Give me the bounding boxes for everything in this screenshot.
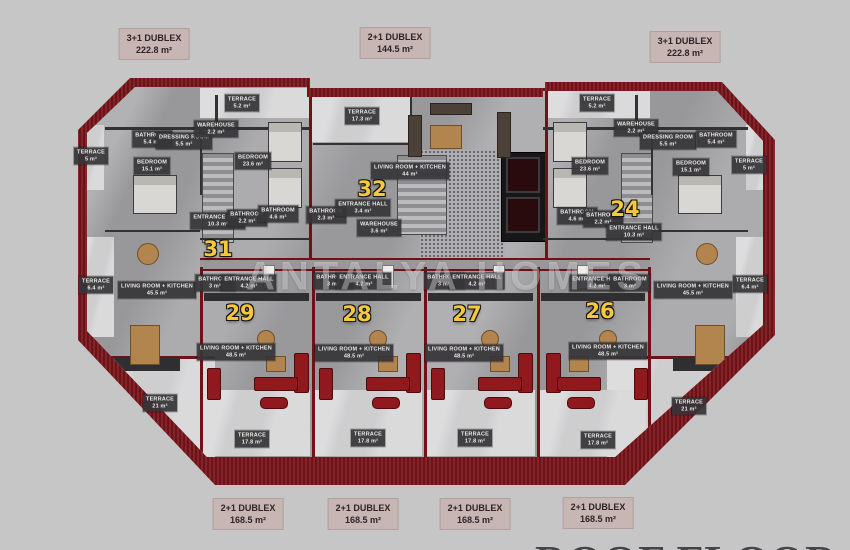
unit-type-label: 2+1 DUBLEX168.5 m² [213, 498, 284, 530]
unit-number: 32 [357, 177, 386, 201]
round-table-icon [696, 243, 718, 265]
room-label: LIVING ROOM + KITCHEN48.5 m² [197, 344, 275, 361]
room-label-room: TERRACE [228, 97, 256, 104]
room-label-room: ENTRANCE HALL [338, 202, 387, 209]
unit-number: 31 [203, 237, 232, 261]
room-label-area: 2.2 m² [197, 129, 235, 136]
room-label-area: 5.4 m² [699, 139, 733, 146]
unit-type-label-type: 3+1 DUBLEX [658, 35, 713, 47]
unit-divider-wall [648, 267, 651, 457]
elevator-icon [506, 197, 540, 233]
room-label: TERRACE21 m² [672, 398, 706, 415]
unit-type-label: 2+1 DUBLEX168.5 m² [563, 497, 634, 529]
room-label-area: 17.8 m² [238, 439, 266, 446]
room-label-area: 48.5 m² [428, 353, 500, 360]
unit-type-label: 3+1 DUBLEX222.8 m² [650, 31, 721, 63]
unit-type-label-type: 2+1 DUBLEX [221, 502, 276, 514]
unit-type-label: 3+1 DUBLEX222.8 m² [119, 28, 190, 60]
room-label-area: 10.3 m² [609, 232, 658, 239]
room-label: TERRACE6.4 m² [79, 277, 113, 294]
terrace-bench-icon [372, 397, 400, 409]
dining-table-icon [130, 325, 160, 365]
unit-divider-wall [200, 267, 203, 457]
room-label: TERRACE6.4 m² [733, 276, 767, 293]
room-label-area: 17.8 m² [461, 438, 489, 445]
room-label: TERRACE17.8 m² [235, 431, 269, 448]
room-label-room: TERRACE [675, 400, 703, 407]
sofa-icon [207, 368, 221, 400]
room-label: TERRACE17.8 m² [351, 430, 385, 447]
unit-type-label: 2+1 DUBLEX144.5 m² [360, 27, 431, 59]
room-label-area: 17.8 m² [584, 440, 612, 447]
room-label-area: 5.2 m² [583, 103, 611, 110]
table-icon [430, 125, 462, 149]
unit-type-label-area: 168.5 m² [448, 514, 503, 526]
unit-number: 27 [452, 302, 481, 326]
room-label-room: TERRACE [146, 397, 174, 404]
interior-wall [105, 230, 200, 232]
unit-number: 29 [225, 301, 254, 325]
bed-icon [133, 175, 177, 214]
room-label-room: ENTRANCE HALL [609, 226, 658, 233]
sofa-icon [319, 368, 333, 400]
unit-type-label-area: 222.8 m² [127, 44, 182, 56]
room-label: ENTRANCE HALL10.3 m² [606, 224, 661, 241]
room-label-room: LIVING ROOM + KITCHEN [318, 347, 390, 354]
unit-divider-wall [309, 88, 312, 258]
room-label-room: BEDROOM [575, 160, 605, 167]
room-label-area: 21 m² [146, 403, 174, 410]
bed-icon [553, 122, 587, 162]
room-label: BEDROOM15.1 m² [134, 158, 170, 175]
room-label-area: 5.5 m² [159, 141, 209, 148]
unit-type-label-area: 144.5 m² [368, 43, 423, 55]
room-label-room: LIVING ROOM + KITCHEN [374, 165, 446, 172]
room-label-room: LIVING ROOM + KITCHEN [428, 347, 500, 354]
room-label-room: DRESSING ROOM [643, 135, 693, 142]
room-label: DRESSING ROOM5.5 m² [640, 133, 696, 150]
unit-type-label-area: 222.8 m² [658, 47, 713, 59]
room-label-room: LIVING ROOM + KITCHEN [121, 284, 193, 291]
unit-type-label-type: 2+1 DUBLEX [571, 501, 626, 513]
round-table-icon [137, 243, 159, 265]
unit-number: 26 [585, 299, 614, 323]
bed-icon [268, 168, 302, 208]
room-label-room: TERRACE [735, 159, 763, 166]
room-label-room: TERRACE [354, 432, 382, 439]
room-label-room: LIVING ROOM + KITCHEN [200, 346, 272, 353]
room-label: TERRACE5.2 m² [225, 95, 259, 112]
sofa-icon [478, 377, 522, 391]
room-label: BATHROOM4.6 m² [258, 206, 298, 223]
room-label-room: TERRACE [736, 278, 764, 285]
room-label-area: 5.2 m² [228, 103, 256, 110]
sofa-icon [254, 377, 298, 391]
unit-type-label-type: 2+1 DUBLEX [448, 502, 503, 514]
sofa-icon [431, 368, 445, 400]
room-label-area: 15.1 m² [137, 166, 167, 173]
room-label: LIVING ROOM + KITCHEN48.5 m² [315, 345, 393, 362]
unit-type-label: 2+1 DUBLEX168.5 m² [328, 498, 399, 530]
unit-number: 24 [610, 197, 639, 221]
unit-type-label-area: 168.5 m² [221, 514, 276, 526]
room-label-room: TERRACE [238, 433, 266, 440]
room-label-area: 5.5 m² [643, 141, 693, 148]
room-label: LIVING ROOM + KITCHEN45.5 m² [654, 282, 732, 299]
sofa-icon [497, 112, 511, 158]
room-label-area: 6.4 m² [736, 284, 764, 291]
room-label-area: 48.5 m² [318, 353, 390, 360]
room-label: LIVING ROOM + KITCHEN48.5 m² [425, 345, 503, 362]
room-label-area: 6.4 m² [82, 285, 110, 292]
dining-table-icon [695, 325, 725, 365]
room-label-area: 17.3 m² [348, 116, 376, 123]
room-label: TERRACE17.8 m² [458, 430, 492, 447]
room-label-area: 15.1 m² [676, 167, 706, 174]
room-label: LIVING ROOM + KITCHEN48.5 m² [569, 343, 647, 360]
unit-divider-wall [545, 88, 548, 258]
unit-type-label: 2+1 DUBLEX168.5 m² [440, 498, 511, 530]
room-label: BATHROOM5.4 m² [696, 131, 736, 148]
sofa-icon [634, 368, 648, 400]
unit-type-label-area: 168.5 m² [336, 514, 391, 526]
room-label-area: 45.5 m² [121, 290, 193, 297]
sofa-icon [557, 377, 601, 391]
room-label-area: 5 m² [735, 165, 763, 172]
bed-icon [678, 175, 722, 214]
room-label-room: BEDROOM [137, 160, 167, 167]
room-label-room: TERRACE [461, 432, 489, 439]
room-label: BEDROOM23.6 m² [572, 158, 608, 175]
room-label-area: 17.8 m² [354, 438, 382, 445]
room-label-room: WAREHOUSE [197, 123, 235, 130]
room-label-room: BEDROOM [238, 155, 268, 162]
unit-type-label-type: 3+1 DUBLEX [127, 32, 182, 44]
room-label-room: BATHROOM [699, 133, 733, 140]
room-label: TERRACE5.2 m² [580, 95, 614, 112]
staircase-icon [202, 153, 234, 243]
unit-number: 28 [342, 302, 371, 326]
floor-plan-title: ROOF FLOOR PLAN [535, 536, 850, 550]
room-label-room: LIVING ROOM + KITCHEN [572, 345, 644, 352]
room-label-room: TERRACE [348, 110, 376, 117]
terrace-bench-icon [567, 397, 595, 409]
bed-icon [268, 122, 302, 162]
room-label: BEDROOM23.6 m² [235, 153, 271, 170]
room-label: ENTRANCE HALL3.4 m² [335, 200, 390, 217]
terrace-bench-icon [260, 397, 288, 409]
room-label-room: BEDROOM [676, 161, 706, 168]
room-label-area: 48.5 m² [200, 352, 272, 359]
unit-type-label-area: 168.5 m² [571, 513, 626, 525]
room-label-area: 3.4 m² [338, 208, 387, 215]
sofa-icon [408, 115, 422, 157]
room-label-room: TERRACE [583, 97, 611, 104]
room-label-room: TERRACE [82, 279, 110, 286]
room-label-area: 23.6 m² [575, 166, 605, 173]
room-label-area: 23.6 m² [238, 161, 268, 168]
room-label: BEDROOM15.1 m² [673, 159, 709, 176]
room-label-area: 45.5 m² [657, 290, 729, 297]
terrace-bench-icon [484, 397, 512, 409]
interior-wall [313, 143, 412, 145]
room-label-room: TERRACE [584, 434, 612, 441]
room-label-area: 4.6 m² [261, 214, 295, 221]
sofa-icon [366, 377, 410, 391]
floor-plan-canvas: TERRACE5.2 m²TERRACE5 m²BATHROOM5.4 m²DR… [0, 0, 850, 550]
room-label: TERRACE5 m² [732, 157, 766, 174]
unit-type-label-type: 2+1 DUBLEX [336, 502, 391, 514]
room-label-room: LIVING ROOM + KITCHEN [657, 284, 729, 291]
room-label: TERRACE21 m² [143, 395, 177, 412]
unit-type-label-type: 2+1 DUBLEX [368, 31, 423, 43]
room-label-room: BATHROOM [261, 208, 295, 215]
watermark: ANTALYA HOMES [246, 255, 648, 300]
sofa-icon [430, 103, 472, 115]
room-label-room: WAREHOUSE [360, 222, 398, 229]
room-label-area: 5 m² [77, 156, 105, 163]
room-label-room: TERRACE [77, 150, 105, 157]
room-label: LIVING ROOM + KITCHEN45.5 m² [118, 282, 196, 299]
room-label: WAREHOUSE3.6 m² [357, 220, 401, 237]
room-label: WAREHOUSE2.2 m² [194, 121, 238, 138]
elevator-icon [506, 157, 540, 193]
room-label-area: 21 m² [675, 406, 703, 413]
room-label-room: WAREHOUSE [617, 122, 655, 129]
room-label-area: 3.6 m² [360, 228, 398, 235]
interior-wall [653, 230, 748, 232]
room-label-area: 48.5 m² [572, 351, 644, 358]
room-label: TERRACE17.3 m² [345, 108, 379, 125]
room-label: TERRACE17.8 m² [581, 432, 615, 449]
room-label: TERRACE5 m² [74, 148, 108, 165]
